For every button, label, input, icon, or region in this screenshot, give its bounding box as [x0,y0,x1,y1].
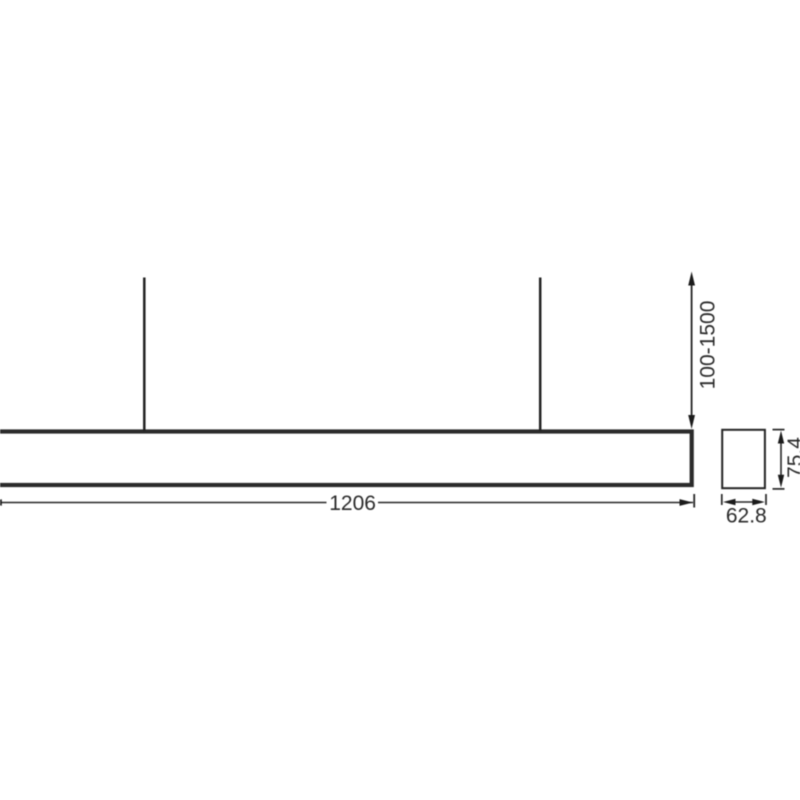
svg-text:62.8: 62.8 [726,505,767,528]
svg-text:1206: 1206 [329,492,376,515]
svg-text:100-1500: 100-1500 [697,301,720,390]
svg-text:75.4: 75.4 [784,437,800,478]
